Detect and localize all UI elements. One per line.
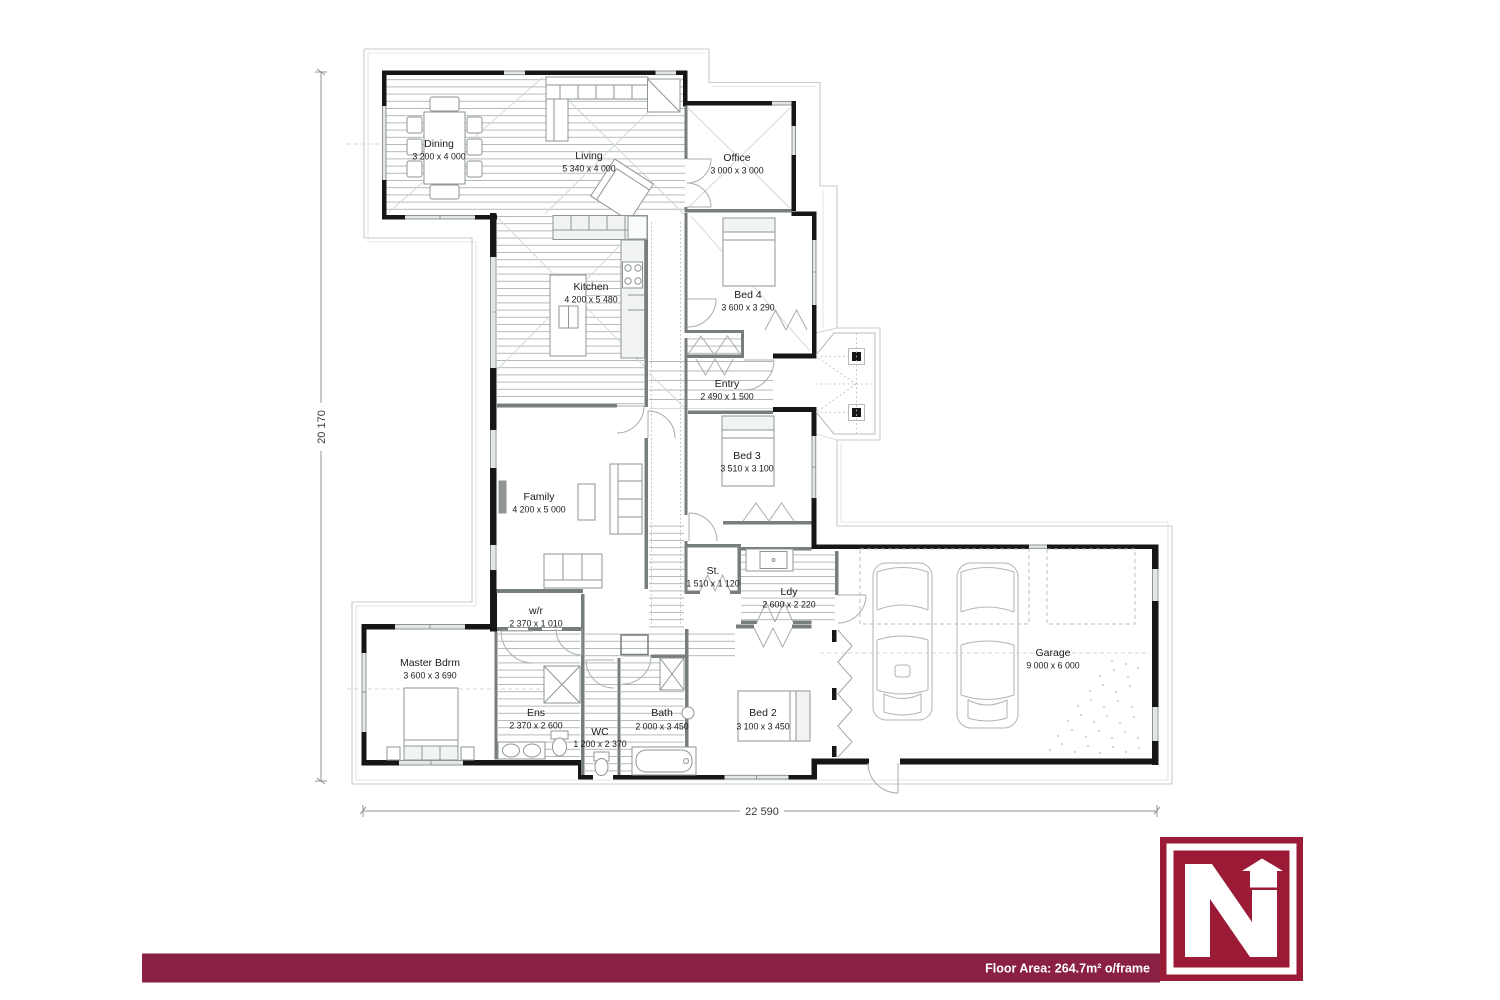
svg-text:3 000 x 3 000: 3 000 x 3 000 xyxy=(710,166,763,176)
svg-text:20 170: 20 170 xyxy=(316,410,328,444)
svg-text:Family: Family xyxy=(524,491,556,503)
svg-text:3 100 x 3 450: 3 100 x 3 450 xyxy=(736,722,789,732)
svg-text:Dining: Dining xyxy=(424,138,454,150)
svg-text:4 200 x 5 480: 4 200 x 5 480 xyxy=(564,295,617,305)
svg-text:2 370 x 1 010: 2 370 x 1 010 xyxy=(509,619,562,629)
svg-text:4 200 x 5 000: 4 200 x 5 000 xyxy=(512,505,565,515)
svg-text:Bath: Bath xyxy=(651,707,673,719)
svg-text:Ldy: Ldy xyxy=(781,586,799,598)
svg-text:3 600 x 3 690: 3 600 x 3 690 xyxy=(403,671,456,681)
svg-text:Kitchen: Kitchen xyxy=(573,281,608,293)
svg-text:Master Bdrm: Master Bdrm xyxy=(400,657,460,669)
svg-text:3 510 x 3 100: 3 510 x 3 100 xyxy=(720,464,773,474)
svg-text:Bed 2: Bed 2 xyxy=(749,707,777,719)
svg-text:1 200 x 2 370: 1 200 x 2 370 xyxy=(573,739,626,749)
svg-text:22 590: 22 590 xyxy=(745,806,779,818)
svg-text:1 510 x 1 120: 1 510 x 1 120 xyxy=(686,579,739,589)
svg-text:9 000 x 6 000: 9 000 x 6 000 xyxy=(1026,661,1079,671)
svg-text:3 600 x 3 290: 3 600 x 3 290 xyxy=(721,303,774,313)
svg-text:2 370 x 2 600: 2 370 x 2 600 xyxy=(509,721,562,731)
svg-text:Entry: Entry xyxy=(715,378,740,390)
svg-text:St.: St. xyxy=(707,565,720,577)
svg-text:2 600 x 2 220: 2 600 x 2 220 xyxy=(762,600,815,610)
svg-text:Garage: Garage xyxy=(1035,647,1070,659)
svg-text:Ens: Ens xyxy=(527,707,545,719)
svg-text:w/r: w/r xyxy=(528,605,544,617)
svg-text:5 340 x 4 000: 5 340 x 4 000 xyxy=(562,164,615,174)
svg-text:WC: WC xyxy=(591,726,609,738)
svg-text:Bed 3: Bed 3 xyxy=(733,450,761,462)
svg-text:Living: Living xyxy=(575,150,603,162)
svg-text:Bed 4: Bed 4 xyxy=(734,289,762,301)
svg-text:3 200 x 4 000: 3 200 x 4 000 xyxy=(412,152,465,162)
svg-text:Office: Office xyxy=(723,152,750,164)
svg-text:2 490 x 1 500: 2 490 x 1 500 xyxy=(700,392,753,402)
svg-text:2 000 x 3 450: 2 000 x 3 450 xyxy=(635,722,688,732)
svg-text:Floor Area: 264.7m² o/frame: Floor Area: 264.7m² o/frame xyxy=(985,962,1150,976)
